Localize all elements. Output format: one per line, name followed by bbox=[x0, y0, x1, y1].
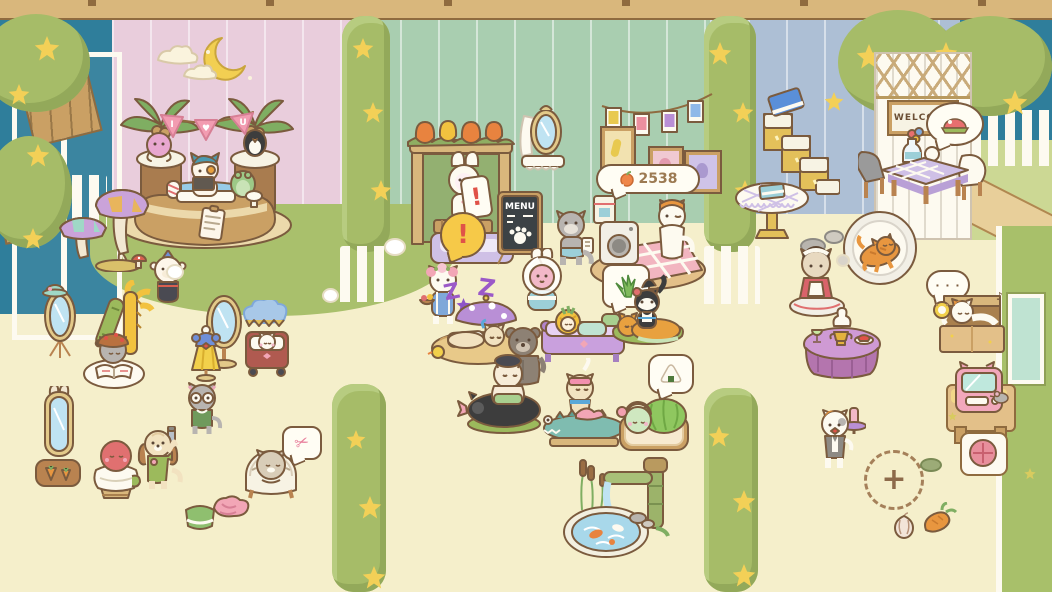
picket-fence-small bbox=[704, 246, 760, 304]
koi-pond-fountain[interactable] bbox=[560, 446, 680, 562]
hanging-photo bbox=[634, 114, 649, 135]
open-book bbox=[96, 365, 132, 378]
carrot-item[interactable] bbox=[920, 502, 958, 536]
beret-cat bbox=[492, 355, 524, 404]
grey-chair bbox=[858, 152, 884, 198]
onion-item[interactable] bbox=[890, 512, 918, 540]
placement-spot[interactable]: + bbox=[864, 450, 924, 510]
dish-icon bbox=[940, 112, 970, 136]
princess-dress bbox=[192, 326, 220, 381]
blue-book bbox=[768, 88, 805, 117]
pebble bbox=[920, 458, 942, 472]
cloud-icon bbox=[158, 46, 197, 64]
banner-heart: ♥ bbox=[202, 124, 210, 134]
long-mirror-carrot-mat[interactable] bbox=[34, 386, 82, 490]
exclaim-bubble-mark: ! bbox=[457, 220, 469, 250]
mirror-glass bbox=[50, 397, 68, 451]
mirror-shelf bbox=[522, 156, 564, 167]
carrot-mat bbox=[36, 460, 80, 486]
duck-toy bbox=[432, 346, 444, 358]
peach-counter-bubble[interactable]: 2538 bbox=[596, 164, 700, 194]
bubble-tail bbox=[290, 450, 306, 467]
banner-letter: I bbox=[170, 120, 173, 130]
topiary-column bbox=[332, 384, 386, 592]
exclaim-bubble[interactable]: ! bbox=[440, 212, 486, 258]
pebble bbox=[824, 230, 844, 244]
menu-board-title: MENU bbox=[505, 202, 535, 212]
white-vase bbox=[834, 308, 851, 326]
tuxedo-cat-salad-bed[interactable] bbox=[608, 274, 688, 350]
cloud-canopy bbox=[244, 300, 286, 323]
game-stage: I ♥ U bbox=[0, 0, 1052, 592]
dress-mirror[interactable] bbox=[190, 292, 244, 384]
poof-cloud bbox=[384, 238, 406, 256]
crib-bed-cat[interactable] bbox=[238, 300, 296, 388]
pink-cushion[interactable] bbox=[960, 432, 1008, 476]
steam-curl bbox=[584, 358, 589, 370]
mouse-toy[interactable] bbox=[988, 388, 1010, 404]
picket-fence-small bbox=[340, 246, 390, 302]
frame-art bbox=[610, 138, 622, 157]
cattails bbox=[580, 460, 605, 514]
banner-letter: U bbox=[239, 118, 246, 128]
clipboard bbox=[199, 205, 225, 241]
tambourine-icon bbox=[934, 302, 950, 318]
oval-mirror-hat[interactable] bbox=[38, 282, 82, 362]
wall-mirror-veil[interactable] bbox=[514, 102, 568, 176]
hamster-wheel-cat[interactable] bbox=[840, 208, 920, 288]
peach-count: 2538 bbox=[639, 171, 678, 187]
box-cat-tambourine[interactable]: ♪ bbox=[932, 290, 1008, 358]
laptop bbox=[193, 177, 214, 190]
octopus-head bbox=[101, 441, 131, 471]
arch-post bbox=[412, 148, 423, 244]
window-right bbox=[1008, 294, 1044, 384]
detergent-box bbox=[594, 196, 615, 223]
purple-party-table[interactable] bbox=[800, 304, 884, 388]
waiter-cat[interactable] bbox=[810, 404, 866, 474]
cloud-icon bbox=[184, 65, 216, 79]
love-banner: I ♥ U bbox=[161, 113, 253, 140]
exclaim-sign-mark: ! bbox=[469, 182, 484, 211]
onigiri-icon bbox=[659, 363, 683, 385]
music-note: ♪ bbox=[996, 290, 1003, 303]
topiary-column bbox=[704, 388, 758, 592]
strawberry-cake bbox=[855, 335, 873, 344]
mushroom-cat-reading[interactable] bbox=[82, 322, 146, 390]
poof-cloud bbox=[166, 264, 184, 280]
maid-cat bbox=[800, 246, 832, 298]
round-side-table[interactable] bbox=[732, 172, 812, 242]
hanging-photo bbox=[688, 101, 703, 122]
hanging-photo bbox=[606, 108, 621, 129]
hat-on-mirror bbox=[43, 285, 67, 297]
book-on-table bbox=[759, 184, 784, 199]
pink-towel bbox=[576, 408, 604, 419]
poof-cloud bbox=[322, 288, 339, 303]
groomer-dog[interactable] bbox=[132, 426, 190, 494]
dish-bubble[interactable] bbox=[926, 102, 984, 146]
gate-lattice bbox=[876, 54, 970, 99]
pink-towel[interactable] bbox=[210, 492, 252, 520]
plus-icon: + bbox=[881, 465, 906, 495]
retro-cat-tv[interactable] bbox=[952, 360, 1006, 414]
crib-cat bbox=[259, 332, 275, 350]
washing-machine bbox=[600, 222, 638, 264]
hanging-photo bbox=[662, 111, 677, 132]
onigiri-bubble[interactable] bbox=[648, 354, 694, 394]
penguin-ornament bbox=[244, 130, 266, 156]
parasol-mushrooms[interactable] bbox=[52, 176, 160, 272]
scissors-bubble[interactable]: ✂ bbox=[282, 426, 322, 460]
moon-clouds-decor[interactable] bbox=[150, 32, 260, 92]
